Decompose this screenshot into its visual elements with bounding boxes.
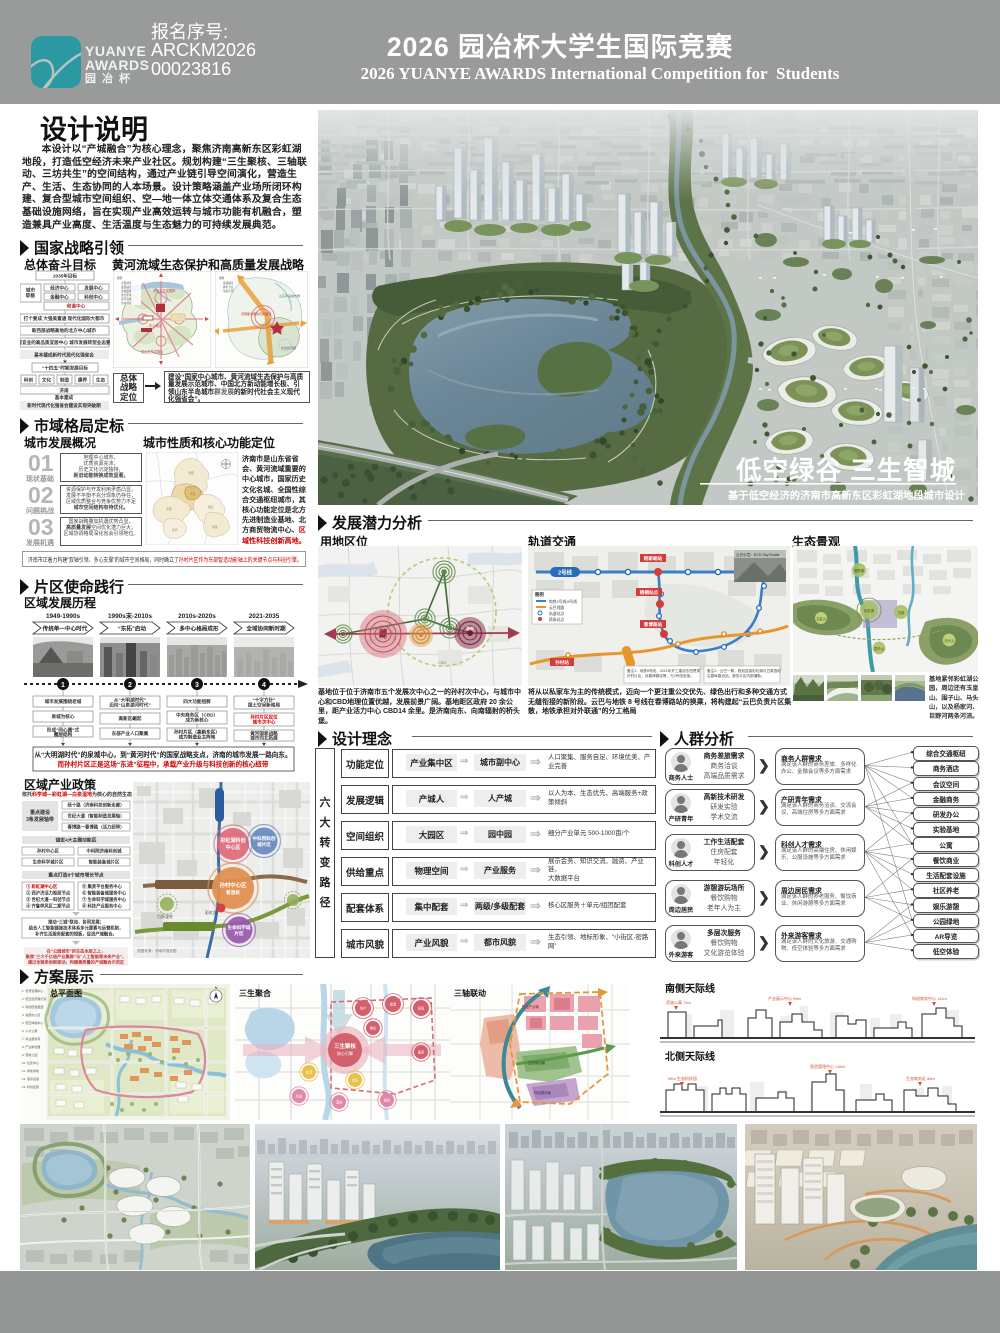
- svg-text:生态商务区 86m: 生态商务区 86m: [906, 1075, 936, 1081]
- svg-text:结合人工智能链接技术体系多元要素与运营机制，: 结合人工智能链接技术体系多元要素与运营机制，: [29, 925, 124, 932]
- svg-text:核心引擎: 核心引擎: [337, 1050, 353, 1056]
- svg-text:绿谷: 绿谷: [384, 1098, 391, 1103]
- svg-text:智能装备城片区: 智能装备城片区: [89, 859, 120, 866]
- svg-text:中科院科创: 中科院科创: [253, 835, 276, 842]
- svg-text:底图来源：济南市规划图: 底图来源：济南市规划图: [137, 948, 177, 953]
- svg-text:四大功能组群: 四大功能组群: [183, 698, 211, 705]
- svg-text:彩虹湖: 彩虹湖: [205, 909, 217, 915]
- svg-text:智造: 智造: [390, 1002, 397, 1007]
- svg-text:生产: 生产: [360, 1006, 366, 1011]
- svg-text:科创中心: 科创中心: [84, 293, 103, 300]
- svg-text:春博路一春博路（活力纽带）: 春博路一春博路（活力纽带）: [67, 824, 124, 831]
- svg-text:生态空间: 生态空间: [223, 289, 234, 293]
- svg-text:“东拓”启动: “东拓”启动: [118, 624, 146, 632]
- svg-text:基于低空经济的济南市高新东区彩虹湖地段城市设计: 基于低空经济的济南市高新东区彩虹湖地段城市设计: [727, 489, 966, 502]
- svg-text:98m 生态科技园: 98m 生态科技园: [668, 1075, 697, 1081]
- svg-text:城市次中心: 城市次中心: [253, 719, 276, 726]
- svg-text:玉皇山: 玉皇山: [816, 616, 826, 621]
- svg-text:省会经济圈: 省会经济圈: [281, 345, 296, 350]
- svg-text:备注2：云巴一期，规划连接彩虹湖与白泉湿地: 备注2：云巴一期，规划连接彩虹湖与白泉湿地: [707, 668, 781, 673]
- svg-text:平阴: 平阴: [166, 507, 172, 511]
- svg-text:重点打造8个城市增长节点: 重点打造8个城市增长节点: [48, 872, 104, 879]
- svg-text:5. 低空体验中心: 5. 低空体验中心: [22, 1020, 43, 1025]
- svg-text:职能: 职能: [26, 292, 36, 299]
- svg-text:济南都市圈协同发展轴: 济南都市圈协同发展轴: [241, 311, 271, 316]
- svg-text:城市向北拓展: 城市向北拓展: [250, 735, 278, 742]
- svg-text:重点区域: 重点区域: [121, 293, 132, 297]
- svg-text:城市节点: 城市节点: [223, 285, 234, 289]
- svg-text:⑧ 科技产业服务中心: ⑧ 科技产业服务中心: [82, 903, 123, 910]
- svg-text:章丘: 章丘: [208, 505, 214, 509]
- svg-text:全域协同新时期: 全域协同新时期: [245, 624, 286, 632]
- svg-text:图例: 图例: [117, 276, 123, 280]
- svg-text:长清: 长清: [172, 528, 178, 532]
- svg-text:服务: 服务: [418, 1050, 425, 1055]
- svg-text:备注1：地铁8号线，2021年开工建设东西贯穿: 备注1：地铁8号线，2021年开工建设东西贯穿: [627, 668, 700, 673]
- svg-text:智造产业轴: 智造产业轴: [521, 1004, 540, 1009]
- svg-text:“十四五”时期发展目标: “十四五”时期发展目标: [42, 365, 88, 372]
- svg-text:中科院济南科创城: 中科院济南科创城: [86, 848, 122, 855]
- svg-text:2: 2: [128, 682, 132, 689]
- svg-text:生活: 生活: [306, 1070, 313, 1075]
- svg-text:3: 3: [195, 682, 199, 689]
- svg-text:新西部战略高地的北方中心城市: 新西部战略高地的北方中心城市: [32, 327, 97, 334]
- svg-text:经十路（济南科技创新走廊）: 经十路（济南科技创新走廊）: [67, 802, 124, 809]
- svg-text:③ 世纪大道—科创节点: ③ 世纪大道—科创节点: [26, 896, 71, 903]
- svg-text:彩虹湖科创: 彩虹湖科创: [219, 837, 245, 844]
- svg-text:传统单一中心时代: 传统单一中心时代: [42, 624, 88, 632]
- svg-text:山东半岛城市群: 山东半岛城市群: [279, 293, 300, 298]
- svg-text:彩虹湖: 彩虹湖: [864, 608, 875, 613]
- svg-text:莱芜: 莱芜: [212, 525, 218, 529]
- svg-text:科创: 科创: [24, 377, 34, 384]
- svg-text:中心区: 中心区: [225, 844, 240, 851]
- svg-text:成为新核心: 成为新核心: [186, 717, 209, 724]
- svg-text:和谐中心: 和谐中心: [66, 303, 86, 310]
- svg-text:换乘站点: 换乘站点: [549, 617, 564, 622]
- svg-text:智造核: 智造核: [226, 889, 240, 896]
- svg-text:图例: 图例: [535, 591, 544, 598]
- svg-text:6. 人才公寓: 6. 人才公寓: [22, 1028, 37, 1033]
- svg-text:1: 1: [61, 682, 65, 689]
- svg-text:2021-2035: 2021-2035: [249, 613, 280, 620]
- svg-text:高新区崛起: 高新区崛起: [119, 715, 142, 722]
- svg-text:三轴联动: 三轴联动: [454, 988, 486, 998]
- svg-text:而孙村片区正是这场“东进”征程中，承载产业升级与科技创新的核: 而孙村片区正是这场“东进”征程中，承载产业升级与科技创新的核心纽带: [58, 760, 269, 769]
- svg-text:滨湖公寓 74m: 滨湖公寓 74m: [666, 999, 692, 1005]
- svg-text:泰山生态发展区: 泰山生态发展区: [141, 349, 164, 354]
- svg-text:总平面图: 总平面图: [50, 988, 82, 998]
- svg-text:孵化: 孵化: [370, 1026, 377, 1031]
- svg-text:黄河流域: 黄河流域: [121, 297, 132, 301]
- svg-text:2035年目标: 2035年目标: [53, 273, 77, 280]
- svg-text:济南: 济南: [59, 387, 69, 394]
- svg-text:圈层结构: 圈层结构: [54, 731, 73, 738]
- svg-text:三生聚合: 三生聚合: [239, 988, 272, 998]
- svg-text:湿地: 湿地: [336, 1100, 343, 1105]
- svg-text:迈向“山泉湖河时代”: 迈向“山泉湖河时代”: [109, 702, 150, 709]
- svg-text:④ 齐鲁样风区二期节点: ④ 齐鲁样风区二期节点: [26, 903, 71, 910]
- svg-text:成为制造业主阵地: 成为制造业主阵地: [179, 734, 216, 741]
- svg-text:3条发展轴带: 3条发展轴带: [26, 816, 54, 823]
- svg-text:CBD: CBD: [438, 660, 447, 665]
- svg-text:⑤ 集贤平台服务中心: ⑤ 集贤平台服务中心: [82, 883, 123, 890]
- svg-text:济阳: 济阳: [188, 471, 194, 475]
- svg-text:孙村: 孙村: [466, 626, 474, 631]
- svg-text:黄河生态发展带: 黄河生态发展带: [153, 288, 176, 293]
- svg-text:10. 社区中心: 10. 社区中心: [22, 1060, 39, 1065]
- svg-text:发展中心: 发展中心: [83, 284, 103, 291]
- svg-text:地铁2号线/8号线: 地铁2号线/8号线: [549, 599, 577, 604]
- svg-text:从“大明湖时代”的泉城中心，到“黄河时代”的国家战略支点，济: 从“大明湖时代”的泉城中心，到“黄河时代”的国家战略支点，济南的城市发展一路向东…: [34, 750, 291, 759]
- svg-text:云巴线路: 云巴线路: [549, 605, 564, 610]
- svg-text:中心: 中心: [379, 633, 388, 640]
- svg-text:锚定4大主题动能区: 锚定4大主题动能区: [55, 837, 96, 844]
- svg-text:智造管理中心 138m: 智造管理中心 138m: [810, 1063, 846, 1069]
- svg-text:生态基底: 生态基底: [121, 301, 132, 305]
- svg-text:泉城为核心: 泉城为核心: [51, 713, 75, 720]
- svg-text:11. 学校用地: 11. 学校用地: [22, 1068, 39, 1073]
- svg-text:经济中心: 经济中心: [50, 284, 69, 291]
- svg-text:研发: 研发: [418, 1006, 425, 1011]
- svg-text:发展轴带: 发展轴带: [121, 285, 132, 289]
- svg-text:春博路站: 春博路站: [644, 621, 663, 628]
- svg-text:白泉湿地: 白泉湿地: [157, 913, 173, 919]
- svg-text:重点建设: 重点建设: [30, 809, 51, 816]
- svg-text:城市发展围绕老城: 城市发展围绕老城: [45, 698, 82, 705]
- svg-text:产业展示中心 99m: 产业展示中心 99m: [768, 995, 802, 1001]
- svg-text:梧桐站点: 梧桐站点: [640, 589, 659, 596]
- svg-text:孙村站: 孙村站: [555, 659, 569, 666]
- svg-text:社区: 社区: [352, 1078, 359, 1083]
- svg-text:中心城区: 中心城区: [271, 327, 283, 332]
- svg-text:8. 产业孵化器: 8. 产业孵化器: [22, 1044, 40, 1049]
- svg-text:发展轴带: 发展轴带: [223, 281, 234, 285]
- svg-text:1. 智慧管理中心: 1. 智慧管理中心: [22, 988, 43, 993]
- svg-text:生态: 生态: [296, 1094, 303, 1099]
- svg-text:多中心格局成形: 多中心格局成形: [179, 624, 219, 632]
- svg-text:马头山: 马头山: [944, 638, 954, 643]
- svg-text:韩家峪站: 韩家峪站: [644, 555, 663, 562]
- svg-text:图例: 图例: [219, 276, 225, 280]
- svg-text:⑦ 生命科学城服务中心: ⑦ 生命科学城服务中心: [82, 896, 127, 903]
- svg-text:通过全链条创新驱动，构建高质量的产城融合示范区: 通过全链条创新驱动，构建高质量的产城融合示范区: [28, 959, 125, 966]
- svg-text:生态廊道: 生态廊道: [121, 289, 132, 293]
- svg-text:孙村中心区: 孙村中心区: [37, 848, 60, 855]
- svg-text:2. 低空经济展示馆: 2. 低空经济展示馆: [22, 996, 46, 1001]
- svg-text:制造: 制造: [60, 377, 70, 384]
- svg-text:推动“三城”联动、协同发展；: 推动“三城”联动、协同发展；: [48, 919, 104, 926]
- svg-text:1949-1990s: 1949-1990s: [46, 613, 81, 620]
- svg-text:② 西沪济活力枢纽节点: ② 西沪济活力枢纽节点: [26, 890, 71, 897]
- svg-text:① 彩虹湖中心区: ① 彩虹湖中心区: [26, 883, 58, 890]
- svg-text:轨道站点: 轨道站点: [549, 611, 564, 616]
- svg-text:新时代现代化强省会建设实现突破期: 新时代现代化强省会建设实现突破期: [27, 402, 101, 409]
- svg-text:雪野湖: 雪野湖: [854, 568, 865, 573]
- svg-text:生命科学城: 生命科学城: [228, 924, 251, 931]
- svg-text:国土空间新格局: 国土空间新格局: [248, 702, 281, 709]
- svg-text:围子山: 围子山: [874, 646, 884, 651]
- svg-text:孙村片区，设春博路站等，与2号线衔接；: 孙村片区，设春博路站等，与2号线衔接；: [627, 673, 694, 678]
- svg-text:生态绿谷轴: 生态绿谷轴: [528, 1060, 546, 1065]
- svg-text:生命科学城片区: 生命科学城片区: [33, 859, 64, 866]
- svg-text:市区: 市区: [190, 492, 196, 496]
- svg-text:孙村中心区: 孙村中心区: [220, 881, 248, 889]
- svg-text:城片区: 城片区: [257, 841, 271, 848]
- svg-text:2号线: 2号线: [558, 568, 572, 576]
- svg-text:7. 商业服务带: 7. 商业服务带: [22, 1036, 40, 1041]
- svg-text:生态: 生态: [96, 377, 106, 384]
- svg-text:9. 湿地公园: 9. 湿地公园: [22, 1052, 37, 1057]
- svg-text:补齐生活服务配套的短板，促进产城融合。: 补齐生活服务配套的短板，促进产城融合。: [34, 931, 117, 938]
- svg-text:N: N: [215, 985, 218, 990]
- svg-text:东部产业人口聚集: 东部产业人口聚集: [112, 730, 149, 737]
- svg-text:低空绿谷 三生智城: 低空绿谷 三生智城: [735, 456, 956, 485]
- svg-text:白泉: 白泉: [898, 610, 905, 615]
- svg-text:中心城区: 中心城区: [149, 323, 163, 328]
- svg-text:济南: 济南: [379, 627, 388, 634]
- svg-text:沿春晖路设站，服务片区内部通勤。: 沿春晖路设站，服务片区内部通勤。: [707, 673, 765, 678]
- svg-text:片区: 片区: [234, 930, 244, 937]
- svg-text:世纪大道（智能制造发展轴）: 世纪大道（智能制造发展轴）: [67, 813, 124, 820]
- svg-text:依托科学城—彩虹湖—白泉湿地为核心的自然生态高地: 依托科学城—彩虹湖—白泉湿地为核心的自然生态高地: [22, 791, 132, 798]
- svg-text:科创商务中心 110m: 科创商务中心 110m: [912, 995, 947, 1001]
- svg-text:云巴示意：BYD SkyShuttle: 云巴示意：BYD SkyShuttle: [736, 552, 780, 557]
- svg-text:12. 康养设施: 12. 康养设施: [22, 1076, 39, 1081]
- svg-text:主要城市: 主要城市: [121, 281, 132, 285]
- svg-text:打个要成 大强美富通 现代化国际大都市: 打个要成 大强美富通 现代化国际大都市: [24, 315, 105, 322]
- svg-text:宜居宜业的高品质宜居中心 城市发展转型业态要地: 宜居宜业的高品质宜居中心 城市发展转型业态要地: [20, 339, 110, 346]
- svg-text:2010s-2020s: 2010s-2020s: [178, 613, 216, 620]
- svg-text:康养: 康养: [78, 377, 88, 384]
- svg-text:金融中心: 金融中心: [49, 293, 69, 300]
- svg-text:三生聚核: 三生聚核: [334, 1042, 356, 1050]
- svg-text:1990s末-2010s: 1990s末-2010s: [108, 611, 153, 620]
- svg-text:基本建成新时代现代化强省会: 基本建成新时代现代化强省会: [33, 352, 94, 359]
- svg-text:4: 4: [262, 682, 266, 689]
- svg-text:基本建成: 基本建成: [54, 394, 74, 401]
- svg-text:13. 科创走廊: 13. 科创走廊: [22, 1084, 39, 1089]
- svg-text:3. 科创研发组团: 3. 科创研发组团: [22, 1004, 43, 1009]
- svg-text:文化: 文化: [42, 377, 52, 384]
- svg-text:4. 总部办公区: 4. 总部办公区: [22, 1012, 40, 1017]
- svg-text:⑥ 智能装备城服务中心: ⑥ 智能装备城服务中心: [82, 890, 127, 897]
- svg-text:科创服务轴: 科创服务轴: [534, 1090, 552, 1095]
